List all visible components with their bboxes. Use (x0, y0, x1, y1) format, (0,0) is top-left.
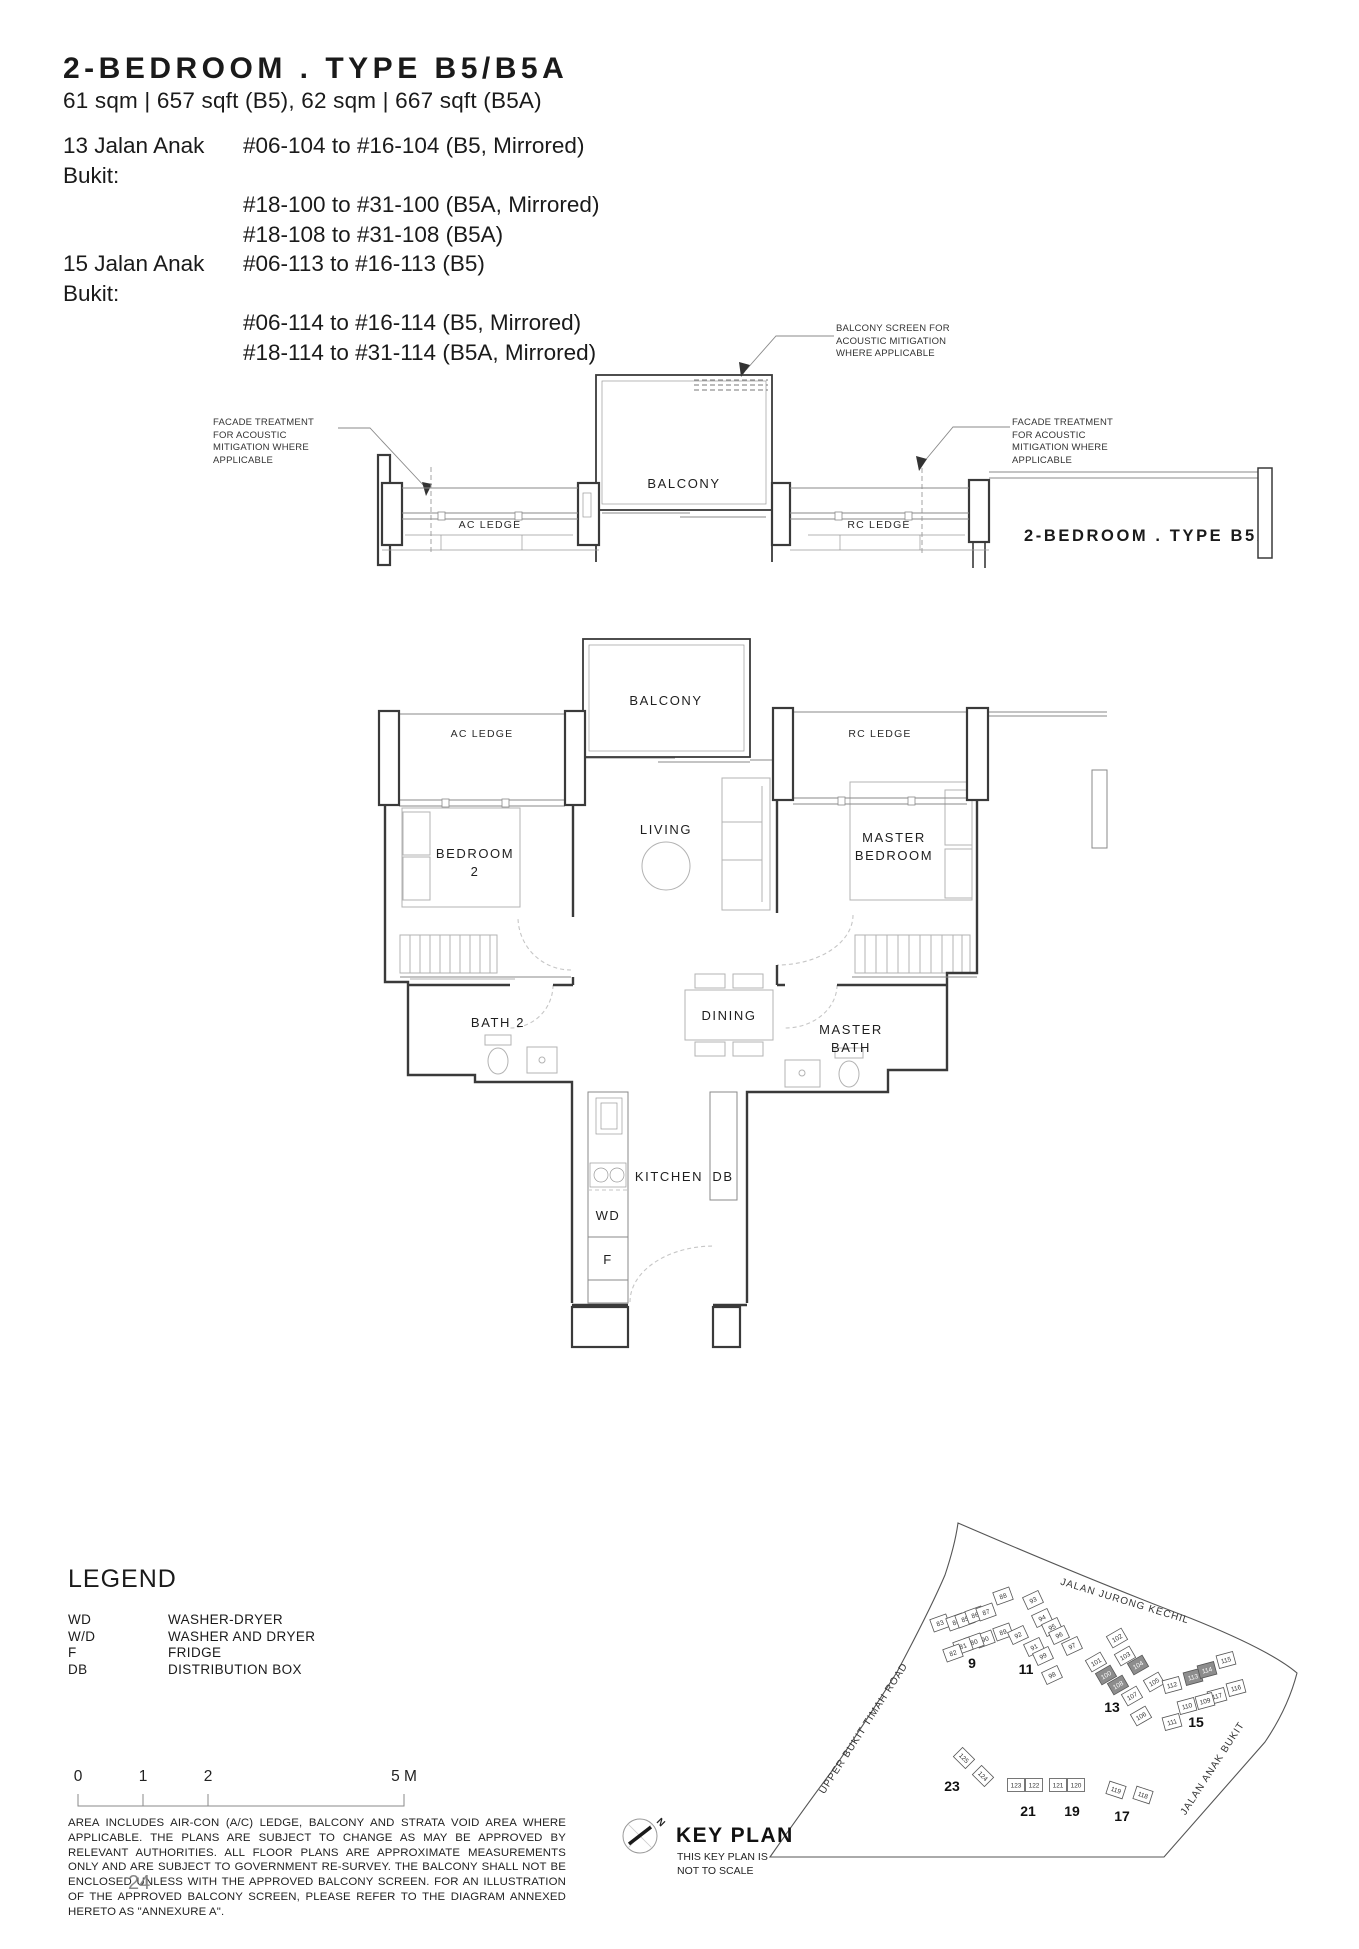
window-mullion (502, 799, 509, 807)
keyplan-unit: 87 (976, 1603, 996, 1621)
keyplan-unit: 106 (1130, 1706, 1151, 1726)
wall-pier (967, 708, 988, 800)
room-label-rc-ledge: RC LEDGE (847, 519, 910, 531)
wall-pier (578, 483, 599, 545)
keyplan-unit: 125 (953, 1747, 974, 1768)
door-arc-bedroom2 (518, 917, 571, 970)
keyplan-unit: 112 (1162, 1677, 1182, 1694)
legend-desc: DISTRIBUTION BOX (168, 1662, 302, 1679)
address-label (63, 338, 243, 368)
window-mullion (835, 512, 842, 520)
keyplan-unit: 122 (1026, 1779, 1043, 1792)
keyplan-unit: 110 (1177, 1698, 1197, 1715)
road-label-jurong-kechil: JALAN JURONG KECHIL (1059, 1577, 1190, 1627)
address-label: 13 Jalan Anak Bukit: (63, 131, 243, 190)
legend-abbr: WD (68, 1612, 168, 1629)
window-mullion (838, 797, 845, 805)
bathroom-sink (785, 1060, 820, 1087)
keyplan-note-line2: NOT TO SCALE (677, 1865, 753, 1877)
west-wall (385, 805, 572, 1303)
keyplan-unit: 115 (1216, 1652, 1236, 1669)
scale-tick-label: 1 (139, 1768, 148, 1785)
wardrobe-hangers (410, 935, 490, 973)
upper-partial-floorplan: BALCONY AC LEDGE RC LEDGE (340, 300, 1340, 630)
pillow (403, 857, 430, 900)
wall-pier (969, 480, 989, 542)
legend-desc: WASHER AND DRYER (168, 1629, 315, 1646)
room-label-rc-ledge: RC LEDGE (848, 728, 911, 740)
keyplan-block-label: 15 (1188, 1714, 1204, 1730)
keyplan-unit: 121 (1050, 1779, 1067, 1792)
legend-row: DB DISTRIBUTION BOX (68, 1662, 315, 1679)
sink-drain (799, 1070, 805, 1076)
legend-row: F FRIDGE (68, 1645, 315, 1662)
sliding-door-line (583, 758, 750, 762)
facade-treatment-note-left: FACADE TREATMENT FOR ACOUSTIC MITIGATION… (213, 417, 333, 467)
room-label-masterbath1: MASTER (819, 1022, 883, 1037)
keyplan-note-line1: THIS KEY PLAN IS (677, 1851, 768, 1863)
keyplan-map: JALAN JURONG KECHIL UPPER BUKIT TIMAH RO… (620, 1480, 1359, 1920)
floorplan-page: 2-BEDROOM . TYPE B5/B5A 61 sqm | 657 sqf… (0, 0, 1359, 1949)
kitchen-layer (588, 1092, 737, 1303)
room-label-balcony: BALCONY (629, 693, 702, 708)
coffee-table (642, 842, 690, 890)
legend-row: W/D WASHER AND DRYER (68, 1629, 315, 1646)
wall-pier (565, 711, 585, 805)
leader-line (923, 427, 1010, 463)
door-arc-master (777, 915, 853, 965)
room-label-master2: BEDROOM (855, 848, 933, 863)
window-mullion (438, 512, 445, 520)
address-row: 13 Jalan Anak Bukit: #06-104 to #16-104 … (63, 131, 599, 190)
legend-abbr: DB (68, 1662, 168, 1679)
address-row: #18-100 to #31-100 (B5A, Mirrored) (63, 190, 599, 220)
window-mullion (908, 797, 915, 805)
north-compass-icon: N (623, 1816, 667, 1853)
keyplan-unit: 98 (1042, 1666, 1063, 1685)
keyplan-unit: 111 (1162, 1714, 1182, 1731)
arrowhead-icon (422, 482, 432, 496)
main-floorplan: BALCONY AC LEDGE RC LEDGE BEDROOM 2 LIVI… (370, 630, 1110, 1360)
address-label: 15 Jalan Anak Bukit: (63, 249, 243, 308)
scale-tick-label: 5 M (391, 1768, 417, 1785)
keyplan-unit-number: 120 (1071, 1782, 1082, 1789)
address-units: #18-100 to #31-100 (B5A, Mirrored) (243, 190, 599, 220)
keyplan-unit: 114 (1197, 1662, 1217, 1679)
wall-pier (379, 711, 399, 805)
sofa-cushions (722, 786, 762, 902)
keyplan-unit: 116 (1226, 1680, 1246, 1697)
keyplan-unit: 109 (1195, 1693, 1215, 1710)
keyplan-unit-number: 121 (1053, 1782, 1064, 1789)
label-f: F (603, 1252, 613, 1267)
keyplan-block-label: 9 (968, 1655, 976, 1671)
room-label-living: LIVING (640, 822, 692, 837)
sink-drain (539, 1057, 545, 1063)
wall-pier (773, 708, 793, 800)
room-label-bedroom2-num: 2 (471, 864, 480, 879)
address-label (63, 308, 243, 338)
address-label (63, 220, 243, 250)
entry-pier (713, 1307, 740, 1347)
sofa (722, 778, 770, 910)
legend-desc: WASHER-DRYER (168, 1612, 283, 1629)
arrowhead-icon (916, 456, 927, 471)
keyplan-unit: 123 (1008, 1779, 1025, 1792)
keyplan-block-label: 21 (1020, 1803, 1036, 1819)
scale-bar: 0 1 2 5 M (70, 1766, 430, 1812)
keyplan-unit: 102 (1106, 1628, 1127, 1648)
wardrobe (400, 935, 497, 973)
keyplan-block-label: 11 (1019, 1661, 1034, 1677)
room-label-bedroom2: BEDROOM (436, 846, 514, 861)
neighbour-wall (1092, 770, 1107, 848)
scale-bar-line (78, 1794, 404, 1806)
party-wall-line (989, 472, 1258, 478)
address-units: #06-104 to #16-104 (B5, Mirrored) (243, 131, 584, 190)
room-label-dining: DINING (701, 1008, 756, 1023)
dining-chair (733, 1042, 763, 1056)
wall-pier-leg (973, 542, 985, 568)
keyplan-unit-number: 122 (1029, 1782, 1040, 1789)
keyplan-unit: 119 (1106, 1781, 1126, 1799)
keyplan-unit-number: 123 (1011, 1782, 1022, 1789)
keyplan-block-label: 17 (1114, 1808, 1130, 1824)
dining-chair (695, 1042, 725, 1056)
dining-chair (695, 974, 725, 988)
pillow (945, 849, 972, 898)
dining-chair (733, 974, 763, 988)
toilet-bowl (839, 1061, 859, 1087)
keyplan-unit: 88 (993, 1587, 1013, 1605)
page-number: 24 (128, 1872, 150, 1895)
cooktop-burner (610, 1168, 624, 1182)
legend-list: WD WASHER-DRYER W/D WASHER AND DRYER F F… (68, 1612, 315, 1678)
ledge-sill-lines (790, 535, 989, 550)
keyplan-unit: 105 (1143, 1672, 1164, 1692)
legend-title: LEGEND (68, 1565, 177, 1594)
toilet-bowl (488, 1048, 508, 1074)
legend-abbr: F (68, 1645, 168, 1662)
legend-desc: FRIDGE (168, 1645, 221, 1662)
label-wd: WD (596, 1208, 621, 1223)
room-label-bath2: BATH 2 (471, 1015, 525, 1030)
party-wall-line (988, 712, 1107, 716)
road-label-jalan-anak-bukit: JALAN ANAK BUKIT (1179, 1720, 1247, 1817)
page-title: 2-BEDROOM . TYPE B5/B5A (63, 52, 568, 86)
wall-pier (772, 483, 790, 545)
keyplan-block-label: 13 (1104, 1699, 1120, 1715)
entry-pier (572, 1307, 628, 1347)
wardrobe-hangers (865, 935, 962, 973)
legend-row: WD WASHER-DRYER (68, 1612, 315, 1629)
sliding-door-line (602, 513, 766, 517)
keyplan-unit: 93 (1023, 1591, 1044, 1610)
keyplan-block-label: 19 (1064, 1803, 1080, 1819)
room-label-kitchen: KITCHEN (635, 1169, 703, 1184)
ledge-sill-lines (382, 535, 599, 550)
scale-tick-label: 0 (74, 1768, 83, 1785)
keyplan-unit: 120 (1068, 1779, 1085, 1792)
wall-pier (1258, 468, 1272, 558)
room-label-balcony: BALCONY (647, 476, 720, 491)
label-db: DB (712, 1169, 733, 1184)
address-units: #18-108 to #31-108 (B5A) (243, 220, 503, 250)
balcony-side-wall (596, 510, 772, 562)
address-row: #18-108 to #31-108 (B5A) (63, 220, 599, 250)
door-arc-entry (630, 1246, 714, 1302)
address-label (63, 190, 243, 220)
balcony-screen-hatch (694, 380, 768, 390)
wall-pier (382, 483, 402, 545)
keyplan-unit: 82 (943, 1644, 963, 1662)
kitchen-sink (596, 1098, 622, 1134)
window-mullion (442, 799, 449, 807)
keyplan-unit: 118 (1133, 1786, 1153, 1804)
area-subtitle: 61 sqm | 657 sqft (B5), 62 sqm | 667 sqf… (63, 88, 542, 114)
room-label-ac-ledge: AC LEDGE (459, 519, 522, 531)
keyplan-block-label: 23 (944, 1778, 960, 1794)
toilet-tank (485, 1035, 511, 1045)
kitchen-sink-basin (601, 1103, 617, 1129)
keyplan-title: KEY PLAN (676, 1824, 794, 1847)
room-label-ac-ledge: AC LEDGE (451, 728, 514, 740)
disclaimer-text: AREA INCLUDES AIR-CON (A/C) LEDGE, BALCO… (68, 1816, 566, 1920)
road-label-upper-bukit-timah: UPPER BUKIT TIMAH ROAD (817, 1661, 910, 1796)
legend-abbr: W/D (68, 1629, 168, 1646)
cooktop-burner (594, 1168, 608, 1182)
room-label-master1: MASTER (862, 830, 926, 845)
room-labels: BALCONY AC LEDGE RC LEDGE BEDROOM 2 LIVI… (436, 693, 933, 1267)
north-label: N (654, 1816, 667, 1829)
bathroom-sink (527, 1047, 557, 1073)
leader-line (746, 336, 834, 370)
keyplan-unit: 124 (972, 1765, 993, 1786)
pillow (403, 812, 430, 855)
door-swing-layer (510, 915, 853, 1302)
room-label-masterbath2: BATH (831, 1040, 871, 1055)
window-line (399, 800, 565, 806)
scale-tick-label: 2 (204, 1768, 213, 1785)
window-line (793, 798, 967, 804)
